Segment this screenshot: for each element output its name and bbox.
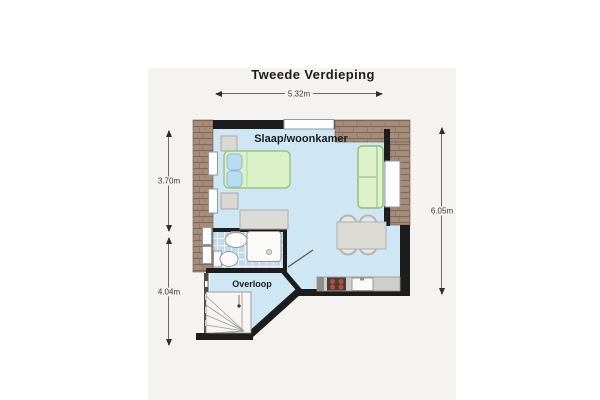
wall-bathroom-bottom	[206, 268, 287, 273]
window-top	[284, 120, 334, 130]
floor-plan-page: Tweede Verdieping Slaap/woonkamer Overlo…	[0, 0, 600, 400]
dimension-arrow-left	[215, 91, 222, 97]
toilet	[214, 251, 239, 267]
dimension-right: 6.05m	[441, 128, 442, 294]
dimension-arrow-down	[439, 288, 445, 295]
floor-plan-drawing	[0, 0, 600, 400]
wall-landing-bottom	[196, 333, 253, 340]
dining-table	[337, 222, 386, 249]
dimension-left-lower-label: 4.04m	[155, 287, 183, 296]
shower	[247, 232, 281, 262]
dimension-arrow-right	[376, 91, 383, 97]
window-right	[385, 161, 400, 207]
wall-bathroom-right	[283, 232, 287, 272]
kitchen-sink	[352, 278, 373, 291]
dimension-arrow-down	[166, 225, 172, 232]
page-title: Tweede Verdieping	[213, 67, 413, 82]
window-left-1	[209, 152, 218, 175]
dimension-left-upper: 3.70m	[168, 131, 169, 231]
staircase-walkline-dot	[237, 304, 240, 307]
wall-right-upper-lining	[384, 129, 390, 162]
nightstand-bottom	[221, 193, 238, 209]
pillow-1	[227, 154, 242, 170]
staircase	[206, 292, 251, 333]
room-label-landing: Overloop	[212, 279, 292, 289]
dimension-arrow-up	[439, 127, 445, 134]
dimension-top-width: 5.32m	[216, 93, 382, 94]
sofa	[358, 146, 383, 208]
dimension-top-label: 5.32m	[285, 90, 313, 99]
dimension-left-upper-label: 3.70m	[155, 177, 183, 186]
window-left-4	[203, 247, 212, 264]
window-left-3	[203, 228, 212, 245]
dimension-arrow-up	[166, 237, 172, 244]
room-label-main: Slaap/woonkamer	[231, 133, 371, 145]
wall-right-lower	[400, 225, 410, 296]
dimension-arrow-up	[166, 130, 172, 137]
dresser	[240, 210, 288, 229]
dimension-left-lower: 4.04m	[168, 238, 169, 345]
dimension-right-label: 6.05m	[428, 207, 456, 216]
stove	[327, 278, 346, 291]
window-left-2	[209, 189, 218, 213]
pillow-2	[227, 171, 242, 187]
dimension-arrow-down	[166, 339, 172, 346]
